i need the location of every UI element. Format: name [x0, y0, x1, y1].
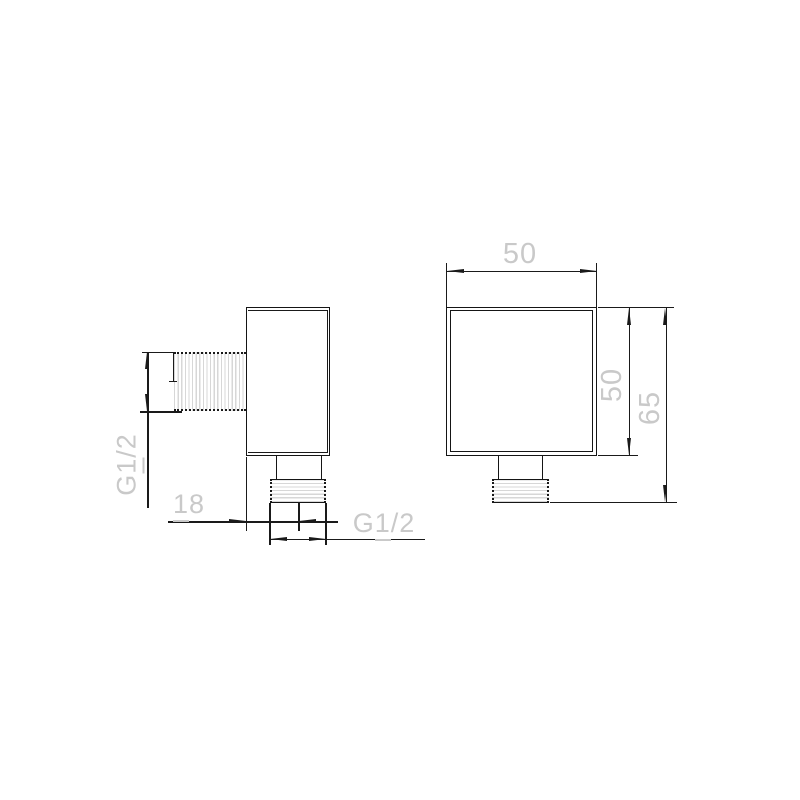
arrow-up-icon	[663, 308, 667, 325]
arrow-left-icon	[299, 519, 316, 523]
extension-line	[140, 411, 182, 412]
outlet-center-line	[298, 502, 299, 531]
side-inlet-end-line	[173, 352, 174, 381]
dimension-line-height	[629, 308, 630, 456]
arrow-right-icon	[580, 269, 597, 273]
side-inlet-center-tick	[169, 381, 177, 382]
extension-line	[598, 455, 638, 456]
arrow-left-icon	[270, 537, 287, 541]
arrow-down-icon	[663, 485, 667, 502]
arrow-down-icon	[627, 438, 631, 455]
arrow-left-icon	[447, 269, 464, 273]
dim-label-height: 50	[598, 355, 624, 415]
extension-line	[550, 502, 677, 503]
technical-drawing-canvas: G1/2 18 G1/2 50 50	[0, 0, 800, 800]
side-body-inner-right-line	[327, 310, 328, 453]
dim-label-width: 50	[502, 240, 538, 265]
arrow-up-icon	[145, 352, 149, 369]
dim-label-offset: 18	[172, 491, 206, 514]
dim-label-outlet-thread: G1/2	[351, 510, 417, 534]
side-body	[246, 307, 330, 457]
arrow-down-icon	[145, 394, 149, 411]
arrow-right-icon	[229, 519, 246, 523]
front-outlet-stem	[498, 456, 544, 479]
side-body-inner-top-line	[248, 310, 327, 311]
arrow-up-icon	[627, 308, 631, 325]
dim-label-overall-height: 65	[636, 378, 662, 438]
dimension-line-outlet	[270, 539, 425, 540]
side-inlet-thread	[174, 352, 246, 411]
front-outlet-thread	[492, 479, 549, 504]
dim-label-inlet-thread: G1/2	[114, 420, 141, 510]
side-outlet-stem	[276, 456, 323, 479]
side-body-inner-bottom-line	[248, 452, 327, 453]
side-outlet-thread	[270, 479, 327, 504]
front-plate-inner-edge	[450, 310, 593, 452]
dimension-line-width	[447, 271, 597, 272]
dimension-line-inlet	[147, 352, 148, 508]
arrow-right-icon	[309, 537, 326, 541]
